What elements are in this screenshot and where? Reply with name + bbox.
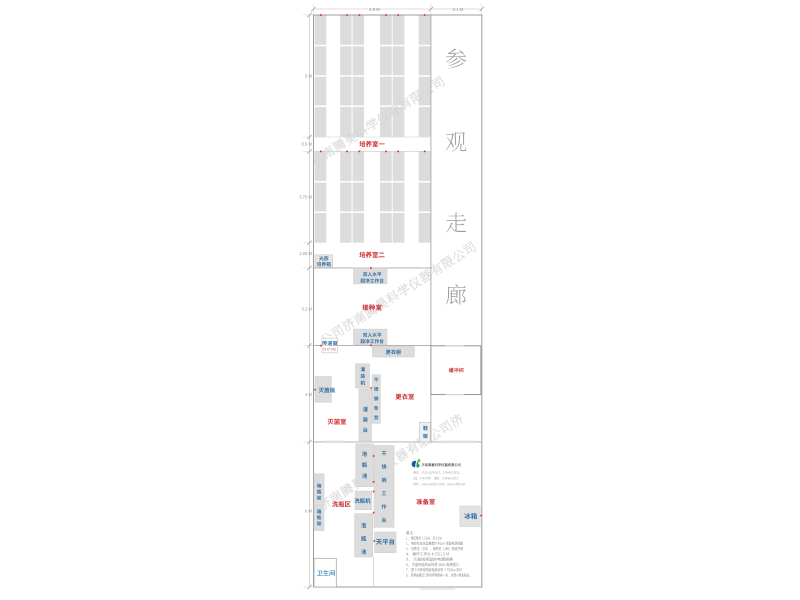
svg-text:5 M: 5 M <box>305 74 312 79</box>
svg-text:1.05 M: 1.05 M <box>299 251 312 256</box>
svg-text:4 M: 4 M <box>305 392 312 397</box>
svg-text:0.6 M: 0.6 M <box>302 142 313 147</box>
svg-text:6 M: 6 M <box>305 509 312 514</box>
svg-text:4.8 M: 4.8 M <box>369 7 380 12</box>
svg-text:3.2 M: 3.2 M <box>302 307 313 312</box>
svg-text:2.1 M: 2.1 M <box>453 7 464 12</box>
svg-text:3.75 M: 3.75 M <box>299 195 312 200</box>
